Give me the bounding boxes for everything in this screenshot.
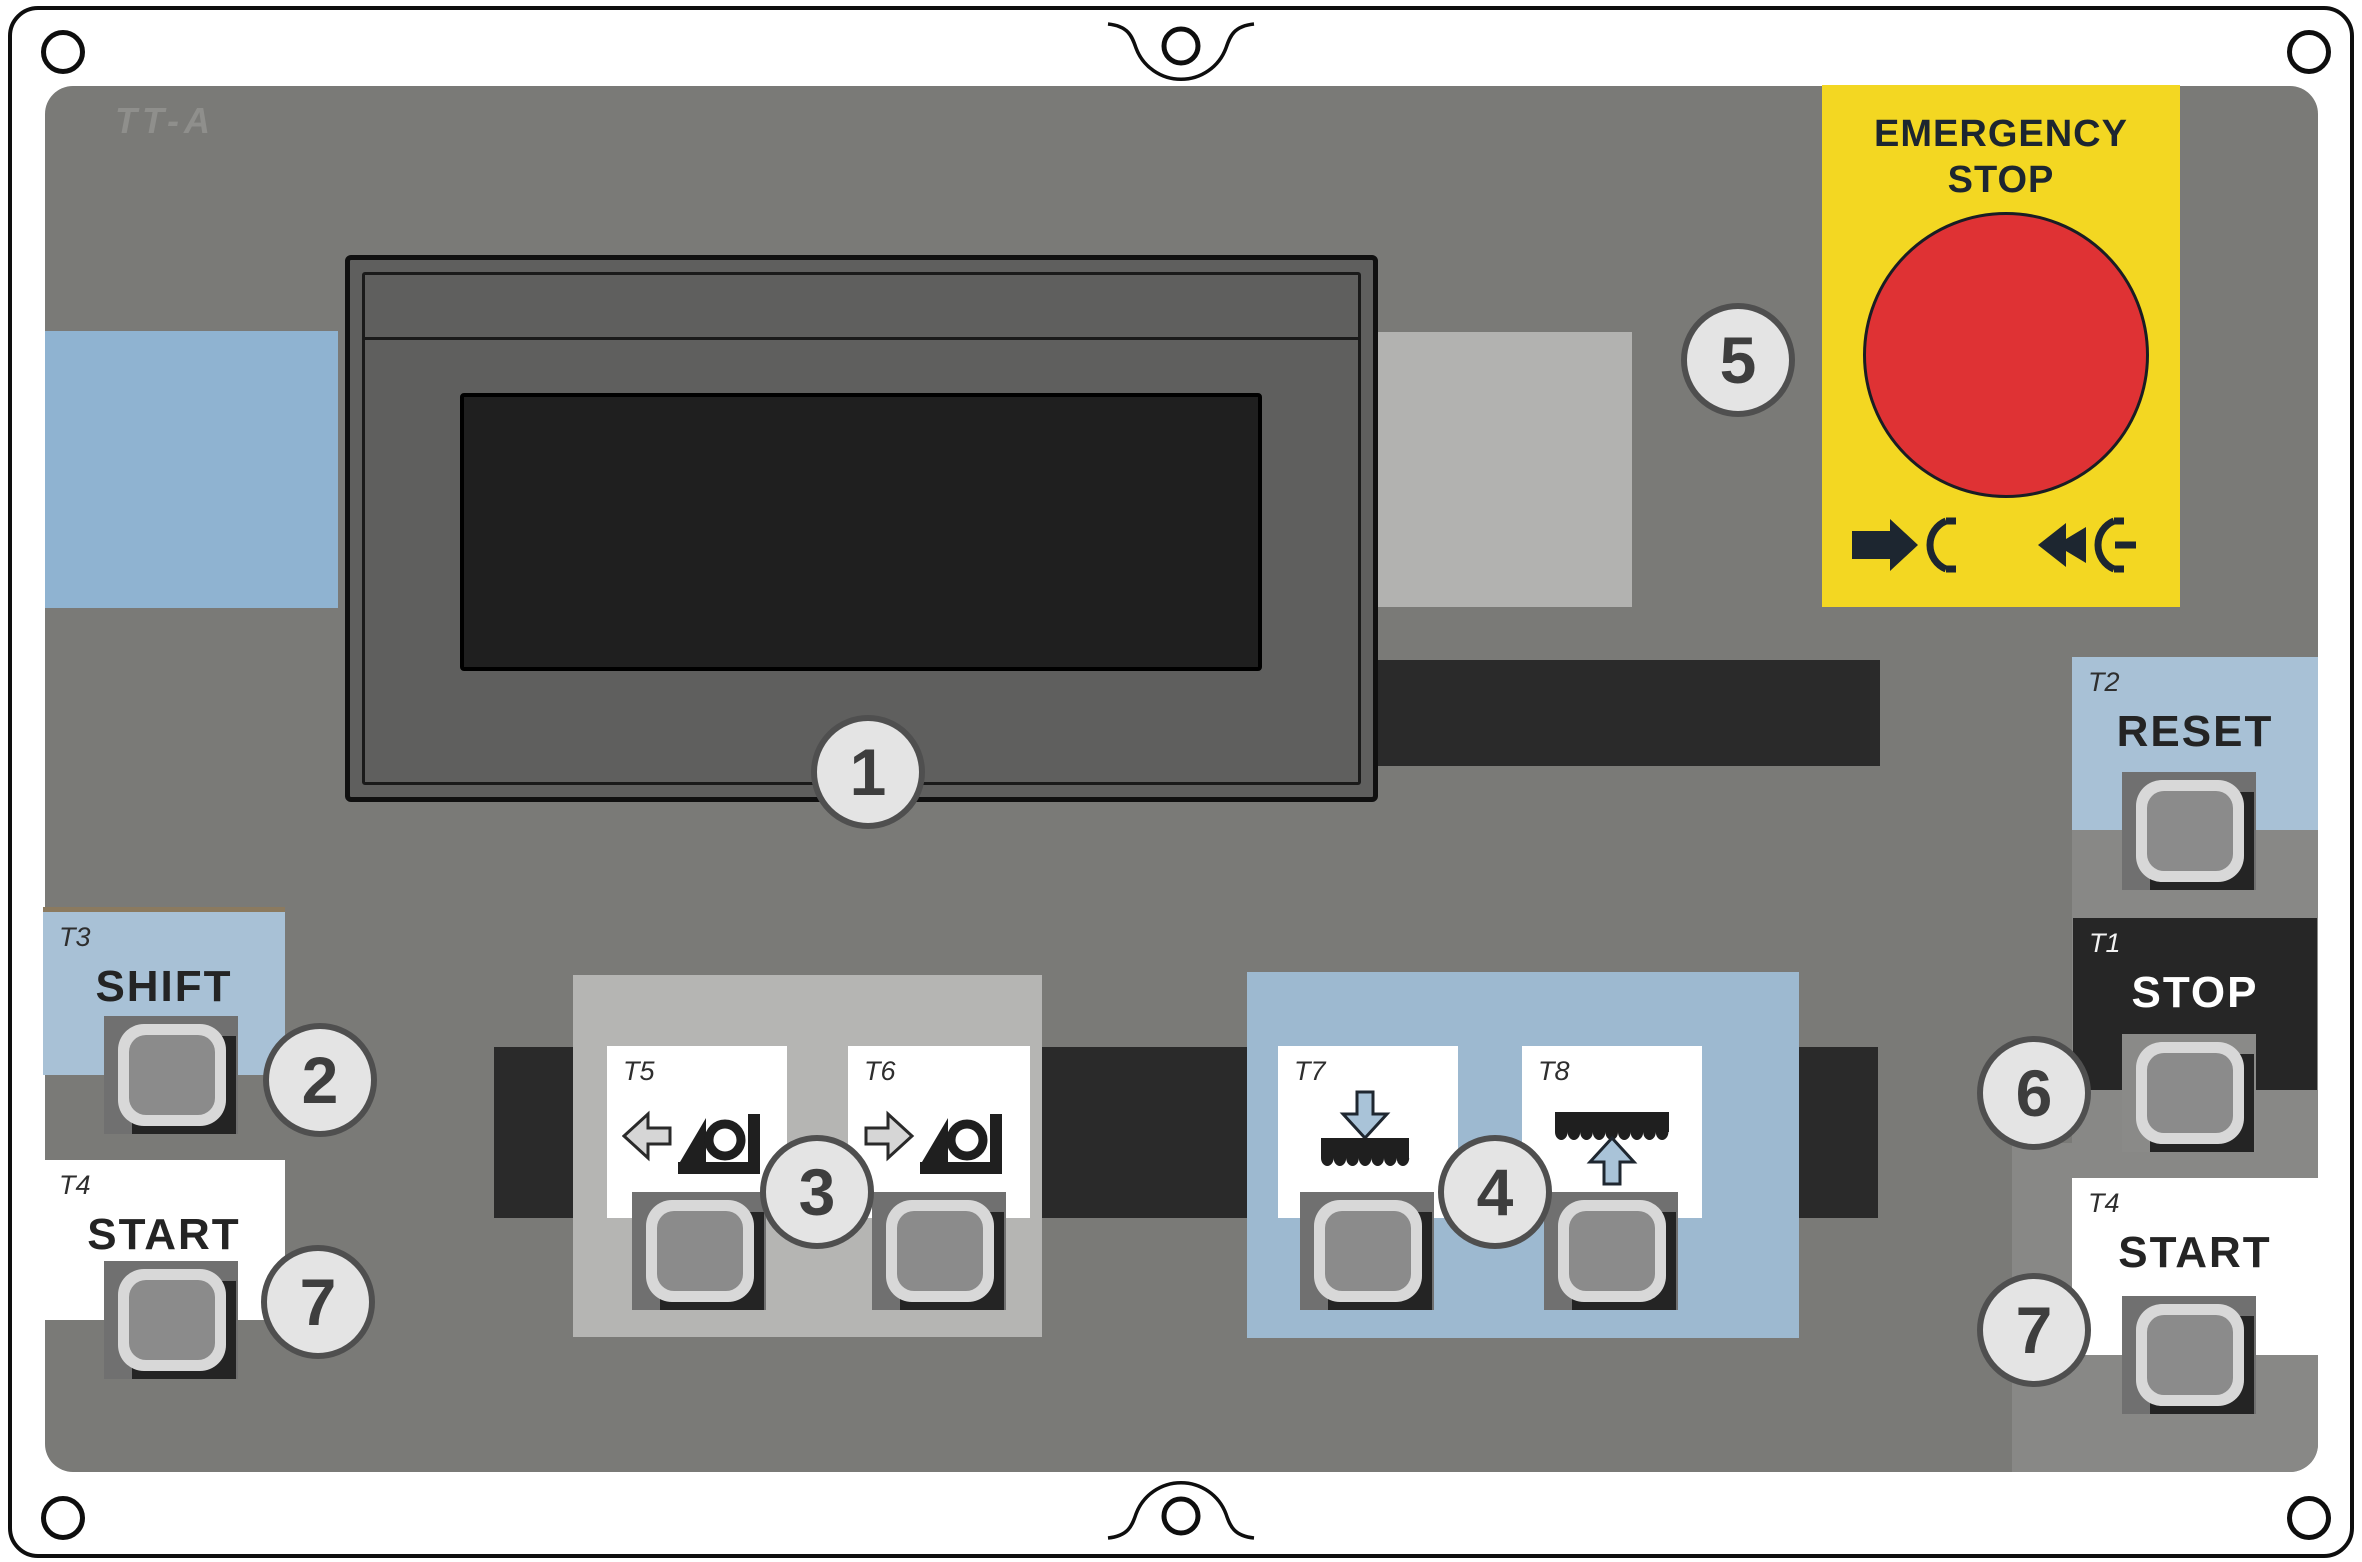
stop-tag: T1 [2089, 928, 2121, 959]
button-face [657, 1211, 743, 1291]
t6-tag: T6 [864, 1056, 896, 1087]
button-face [1569, 1211, 1655, 1291]
callout-group-right: 4 [1438, 1135, 1552, 1249]
button-face [2147, 1315, 2233, 1395]
callout-estop: 5 [1681, 303, 1795, 417]
reset-tag: T2 [2088, 667, 2120, 698]
emergency-stop-label-line1: EMERGENCY [1822, 111, 2180, 157]
start-right-button[interactable] [2122, 1296, 2264, 1422]
button-face [1325, 1211, 1411, 1291]
start-left-label: START [43, 1210, 285, 1260]
t8-button[interactable] [1544, 1192, 1686, 1318]
callout-shift: 2 [263, 1023, 377, 1137]
divider-bar [1368, 660, 1880, 766]
stop-button[interactable] [2122, 1034, 2264, 1160]
lcd-screen [460, 393, 1262, 671]
mounting-notch-icon [1106, 1476, 1256, 1546]
control-panel-diagram: TT-A EMERGENCY STOP [0, 0, 2362, 1562]
start-left-button[interactable] [104, 1261, 246, 1387]
t7-tag: T7 [1294, 1056, 1326, 1087]
button-face [129, 1280, 215, 1360]
emergency-stop-area: EMERGENCY STOP [1822, 85, 2180, 607]
start-right-label: START [2072, 1228, 2318, 1278]
t5-button[interactable] [632, 1192, 774, 1318]
blade-down-icon [1293, 1088, 1443, 1188]
mounting-notch-icon [1106, 18, 1256, 88]
button-face [2147, 1053, 2233, 1133]
mounting-hole-icon [41, 30, 85, 74]
brand-logo: TT-A [115, 100, 215, 142]
button-face [2147, 791, 2233, 871]
display-bezel-line [362, 337, 1361, 340]
shift-tag: T3 [59, 922, 91, 953]
callout-display: 1 [811, 715, 925, 829]
shift-label: SHIFT [43, 962, 285, 1012]
emergency-stop-label: EMERGENCY STOP [1822, 111, 2180, 203]
emergency-stop-icons [1842, 513, 2160, 577]
shift-button[interactable] [104, 1016, 246, 1142]
emergency-stop-button[interactable] [1863, 212, 2149, 498]
stop-label: STOP [2073, 968, 2317, 1018]
button-face [129, 1035, 215, 1115]
start-left-tag: T4 [59, 1170, 91, 1201]
callout-stop: 6 [1977, 1036, 2091, 1150]
reset-button[interactable] [2122, 772, 2264, 898]
reset-label: RESET [2072, 707, 2318, 757]
t6-button[interactable] [872, 1192, 1014, 1318]
right-gray-block [1368, 332, 1632, 607]
mounting-hole-icon [2287, 1496, 2331, 1540]
mounting-hole-icon [2287, 30, 2331, 74]
press-to-stop-icon [1852, 519, 1956, 571]
t5-tag: T5 [623, 1056, 655, 1087]
button-face [897, 1211, 983, 1291]
move-right-icon [864, 1092, 1014, 1188]
pull-to-release-icon [2038, 521, 2136, 569]
callout-start-left: 7 [261, 1245, 375, 1359]
blade-up-icon [1537, 1088, 1687, 1188]
callout-group-left: 3 [760, 1135, 874, 1249]
callout-start-right: 7 [1977, 1273, 2091, 1387]
left-blue-strip [45, 331, 338, 608]
t8-tag: T8 [1538, 1056, 1570, 1087]
t7-button[interactable] [1300, 1192, 1442, 1318]
move-left-icon [622, 1092, 772, 1188]
emergency-stop-label-line2: STOP [1822, 157, 2180, 203]
start-right-tag: T4 [2088, 1188, 2120, 1219]
mounting-hole-icon [41, 1496, 85, 1540]
